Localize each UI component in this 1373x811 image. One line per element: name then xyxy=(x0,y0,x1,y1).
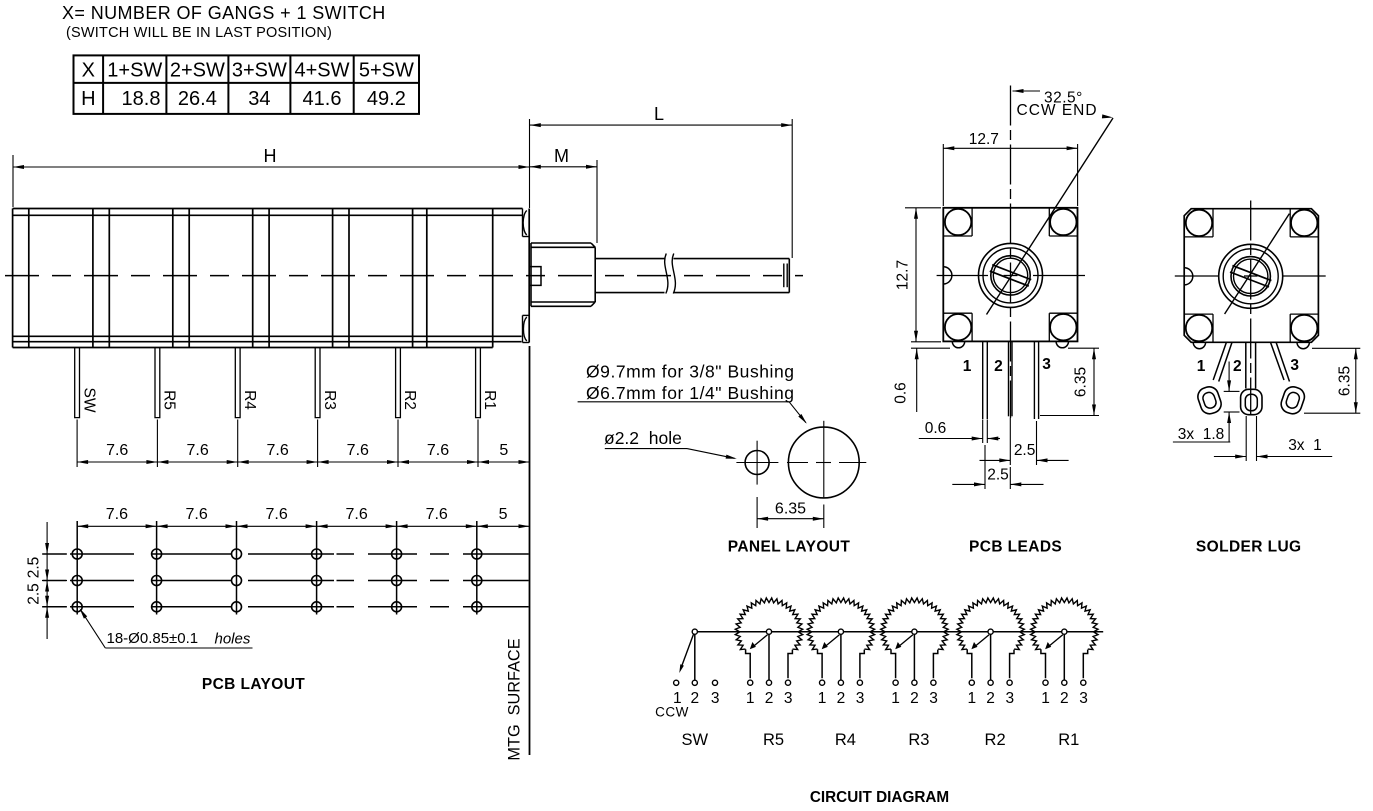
svg-text:1: 1 xyxy=(1041,690,1050,707)
svg-text:2: 2 xyxy=(986,690,995,707)
svg-text:R3: R3 xyxy=(908,731,929,749)
svg-text:7.6: 7.6 xyxy=(427,442,449,459)
svg-text:H: H xyxy=(264,146,277,166)
svg-text:3: 3 xyxy=(784,690,793,707)
svg-text:26.4: 26.4 xyxy=(178,88,217,110)
svg-text:2: 2 xyxy=(690,690,699,707)
svg-text:3: 3 xyxy=(711,690,720,707)
svg-text:3: 3 xyxy=(929,690,938,707)
svg-text:R2: R2 xyxy=(985,731,1006,749)
svg-text:3: 3 xyxy=(1005,690,1014,707)
svg-text:2: 2 xyxy=(837,690,846,707)
svg-text:49.2: 49.2 xyxy=(367,88,406,110)
svg-text:PCB LEADS: PCB LEADS xyxy=(969,539,1062,556)
svg-text:34: 34 xyxy=(248,88,270,110)
svg-text:6.35: 6.35 xyxy=(1337,366,1354,396)
svg-text:MTG SURFACE: MTG SURFACE xyxy=(506,638,524,760)
svg-text:R4: R4 xyxy=(835,731,856,749)
svg-text:PCB LAYOUT: PCB LAYOUT xyxy=(202,676,305,693)
svg-text:1: 1 xyxy=(967,690,976,707)
svg-text:2: 2 xyxy=(1233,358,1242,375)
svg-text:PANEL LAYOUT: PANEL LAYOUT xyxy=(728,539,851,556)
svg-text:7.6: 7.6 xyxy=(186,442,208,459)
svg-text:R4: R4 xyxy=(241,390,258,410)
svg-text:2.5: 2.5 xyxy=(1014,442,1036,459)
svg-text:41.6: 41.6 xyxy=(303,88,342,110)
svg-text:1+SW: 1+SW xyxy=(107,60,162,82)
svg-text:7.6: 7.6 xyxy=(106,506,128,523)
svg-text:R2: R2 xyxy=(401,390,418,410)
svg-text:X: X xyxy=(82,60,95,82)
svg-text:2.5: 2.5 xyxy=(987,467,1009,484)
svg-text:18.8: 18.8 xyxy=(122,88,161,110)
svg-text:5: 5 xyxy=(499,506,508,523)
svg-text:M: M xyxy=(554,146,569,166)
svg-text:1: 1 xyxy=(1197,358,1206,375)
svg-text:R5: R5 xyxy=(763,731,784,749)
svg-text:(SWITCH WILL BE IN LAST POSITI: (SWITCH WILL BE IN LAST POSITION) xyxy=(66,25,332,41)
svg-text:3x 1.8: 3x 1.8 xyxy=(1178,426,1225,443)
svg-text:2+SW: 2+SW xyxy=(170,60,225,82)
svg-text:4+SW: 4+SW xyxy=(294,60,349,82)
svg-text:SOLDER LUG: SOLDER LUG xyxy=(1196,539,1302,556)
svg-text:6.35: 6.35 xyxy=(775,501,806,518)
svg-text:5+SW: 5+SW xyxy=(359,60,414,82)
svg-text:2.5: 2.5 xyxy=(26,583,43,605)
svg-text:H: H xyxy=(81,88,95,110)
svg-text:CCW: CCW xyxy=(655,705,689,720)
svg-text:R5: R5 xyxy=(161,390,178,410)
svg-text:R1: R1 xyxy=(481,390,498,410)
svg-text:L: L xyxy=(654,104,664,124)
svg-text:3x 1: 3x 1 xyxy=(1288,437,1322,454)
svg-text:holes: holes xyxy=(215,631,251,648)
svg-text:7.6: 7.6 xyxy=(266,442,288,459)
svg-text:1: 1 xyxy=(891,690,900,707)
svg-text:ø2.2 hole: ø2.2 hole xyxy=(604,428,682,448)
svg-text:Ø6.7mm for 1/4" Bushing: Ø6.7mm for 1/4" Bushing xyxy=(586,383,795,403)
svg-text:7.6: 7.6 xyxy=(345,506,367,523)
svg-text:SW: SW xyxy=(80,388,97,413)
svg-text:SW: SW xyxy=(682,731,709,749)
svg-text:6.35: 6.35 xyxy=(1073,367,1090,397)
svg-text:R1: R1 xyxy=(1058,731,1079,749)
svg-text:Ø9.7mm for 3/8" Bushing: Ø9.7mm for 3/8" Bushing xyxy=(586,362,795,382)
svg-text:1: 1 xyxy=(963,358,972,375)
svg-text:12.7: 12.7 xyxy=(895,260,912,290)
svg-text:CIRCUIT DIAGRAM: CIRCUIT DIAGRAM xyxy=(810,789,949,806)
svg-text:2.5: 2.5 xyxy=(26,557,43,579)
svg-text:0.6: 0.6 xyxy=(893,382,910,404)
svg-text:2: 2 xyxy=(994,358,1003,375)
svg-text:18-Ø0.85±0.1: 18-Ø0.85±0.1 xyxy=(107,630,199,647)
svg-text:0.6: 0.6 xyxy=(925,420,947,437)
svg-text:3: 3 xyxy=(856,690,865,707)
svg-text:1: 1 xyxy=(818,690,827,707)
svg-text:7.6: 7.6 xyxy=(185,506,207,523)
svg-text:7.6: 7.6 xyxy=(347,442,369,459)
svg-text:1: 1 xyxy=(746,690,755,707)
svg-text:2: 2 xyxy=(1060,690,1069,707)
svg-text:CCW END: CCW END xyxy=(1017,102,1098,119)
svg-text:12.7: 12.7 xyxy=(969,131,999,148)
svg-text:3+SW: 3+SW xyxy=(232,60,287,82)
svg-text:5: 5 xyxy=(499,442,508,459)
svg-text:2: 2 xyxy=(765,690,774,707)
svg-text:X= NUMBER OF GANGS + 1 SWITCH: X= NUMBER OF GANGS + 1 SWITCH xyxy=(62,3,386,23)
svg-text:3: 3 xyxy=(1079,690,1088,707)
svg-text:R3: R3 xyxy=(321,390,338,410)
svg-text:7.6: 7.6 xyxy=(265,506,287,523)
svg-text:7.6: 7.6 xyxy=(106,442,128,459)
svg-text:3: 3 xyxy=(1042,356,1051,373)
svg-text:7.6: 7.6 xyxy=(426,506,448,523)
svg-text:2: 2 xyxy=(910,690,919,707)
svg-text:3: 3 xyxy=(1290,357,1299,374)
